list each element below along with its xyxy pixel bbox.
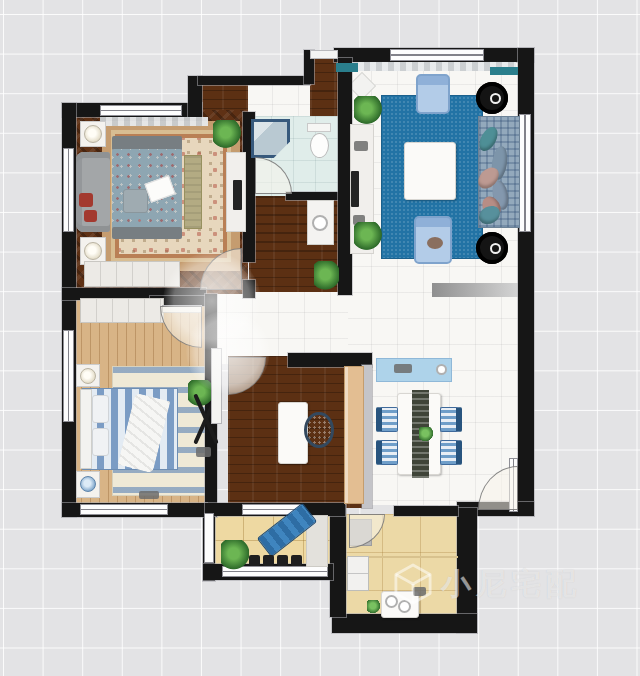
window-living-right <box>519 114 531 232</box>
centerpiece <box>419 427 433 441</box>
dining-chair-2 <box>376 440 398 465</box>
plant-kitchen <box>367 600 380 613</box>
stool-1 <box>249 555 260 566</box>
plant-hall <box>314 261 339 291</box>
wall-kitchen-left <box>330 505 346 617</box>
tv-living <box>351 171 359 207</box>
dish-console <box>394 364 412 373</box>
knob-console <box>436 364 447 375</box>
bench-bed1 <box>184 155 202 229</box>
wall-kitchen-top <box>394 506 458 516</box>
plant-balcony <box>221 540 249 570</box>
armchair-top <box>416 74 450 114</box>
ac-unit-right <box>490 67 518 75</box>
round-chair-top-ring <box>490 93 501 104</box>
burner-2 <box>398 600 411 613</box>
sink-vanity <box>312 215 328 231</box>
sofa-cushion-red2 <box>84 210 97 222</box>
bed1-footboard <box>112 227 182 239</box>
entry-door-leaf <box>336 63 358 72</box>
mat-living-dining <box>432 283 520 297</box>
bed1-pillow <box>123 189 148 213</box>
sofa-cushion-red1 <box>79 193 93 207</box>
pillow-bed2-1 <box>92 395 109 423</box>
tv-bed1 <box>233 180 242 210</box>
floor-plan <box>0 0 640 676</box>
stool-4 <box>291 555 302 566</box>
window-bed1-top <box>100 105 182 116</box>
window-bed1-left <box>63 148 74 232</box>
item-kitchen <box>413 587 426 596</box>
dining-chair-3 <box>440 407 462 432</box>
curtain-bed1 <box>100 117 208 126</box>
wardrobe-bed2 <box>80 298 164 323</box>
coffee-table <box>404 142 456 200</box>
stool-2 <box>263 555 274 566</box>
window-balcony-left <box>204 513 214 563</box>
dining-chair-1 <box>376 407 398 432</box>
lamp-bed2-bottom <box>80 476 96 492</box>
light-glow-2 <box>186 310 270 394</box>
plant-living-top <box>354 96 382 124</box>
office-chair <box>304 412 334 448</box>
wall-top-entry <box>198 76 310 85</box>
fridge <box>347 556 369 591</box>
window-bed2-left <box>63 330 74 422</box>
bed2-headboard <box>80 389 92 469</box>
armchair-item <box>427 237 443 249</box>
burner-1 <box>385 595 398 608</box>
slippers <box>139 491 159 499</box>
plant-bed1 <box>213 120 241 148</box>
window-bed2-bottom <box>80 504 168 515</box>
rack-items <box>196 447 211 457</box>
window-living-top <box>390 49 484 61</box>
lamp-bed1-bottom <box>84 242 102 260</box>
floor-entry-niche <box>198 81 248 113</box>
lamp-bed2-top <box>80 368 96 384</box>
dining-chair-4 <box>440 440 462 465</box>
wall-bath-bottom <box>286 192 341 200</box>
toilet-bowl <box>310 133 329 158</box>
pillow-bed2-2 <box>92 428 109 456</box>
wall-study-top <box>288 353 372 367</box>
toilet-tank <box>307 123 331 132</box>
lamp-bed1-top <box>84 125 102 143</box>
threshold-entry <box>310 50 338 59</box>
round-chair-bottom-ring <box>490 243 501 254</box>
stool-3 <box>277 555 288 566</box>
decor-glasses <box>354 141 368 151</box>
plant-living-bottom <box>354 222 382 250</box>
cabinet-study <box>344 366 364 504</box>
